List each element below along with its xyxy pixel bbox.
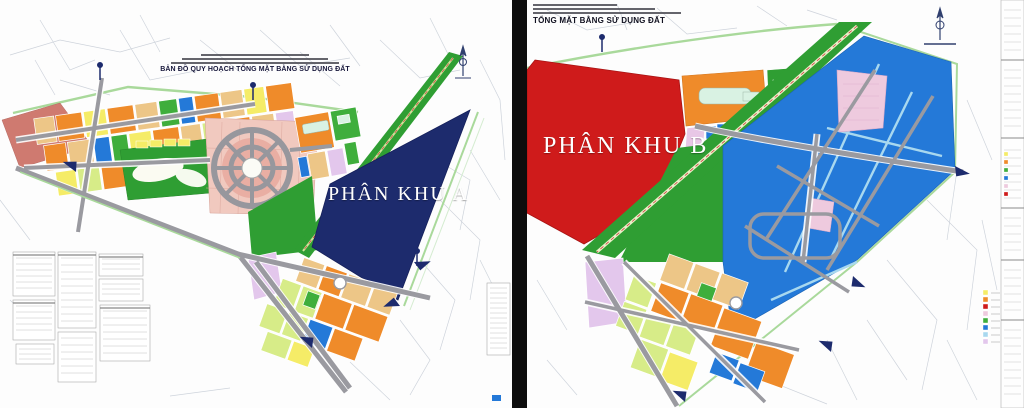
land-use-tables bbox=[13, 252, 150, 382]
mini-legend bbox=[983, 290, 1000, 344]
mini-legend bbox=[487, 283, 510, 401]
legend-panel bbox=[1001, 0, 1024, 408]
road-marker-poles bbox=[600, 35, 605, 53]
right-map-panel bbox=[527, 0, 1024, 408]
left-map-panel bbox=[0, 0, 512, 408]
planning-maps-screenshot: BẢN ĐỒ QUY HOẠCH TỔNG MẶT BẰNG SỬ DỤNG Đ… bbox=[0, 0, 1024, 408]
panel-divider bbox=[512, 0, 527, 408]
site-boundary-top bbox=[527, 24, 837, 68]
left-map-drawing bbox=[0, 0, 512, 408]
right-map-drawing bbox=[527, 0, 1024, 408]
compass-icon bbox=[924, 8, 956, 44]
